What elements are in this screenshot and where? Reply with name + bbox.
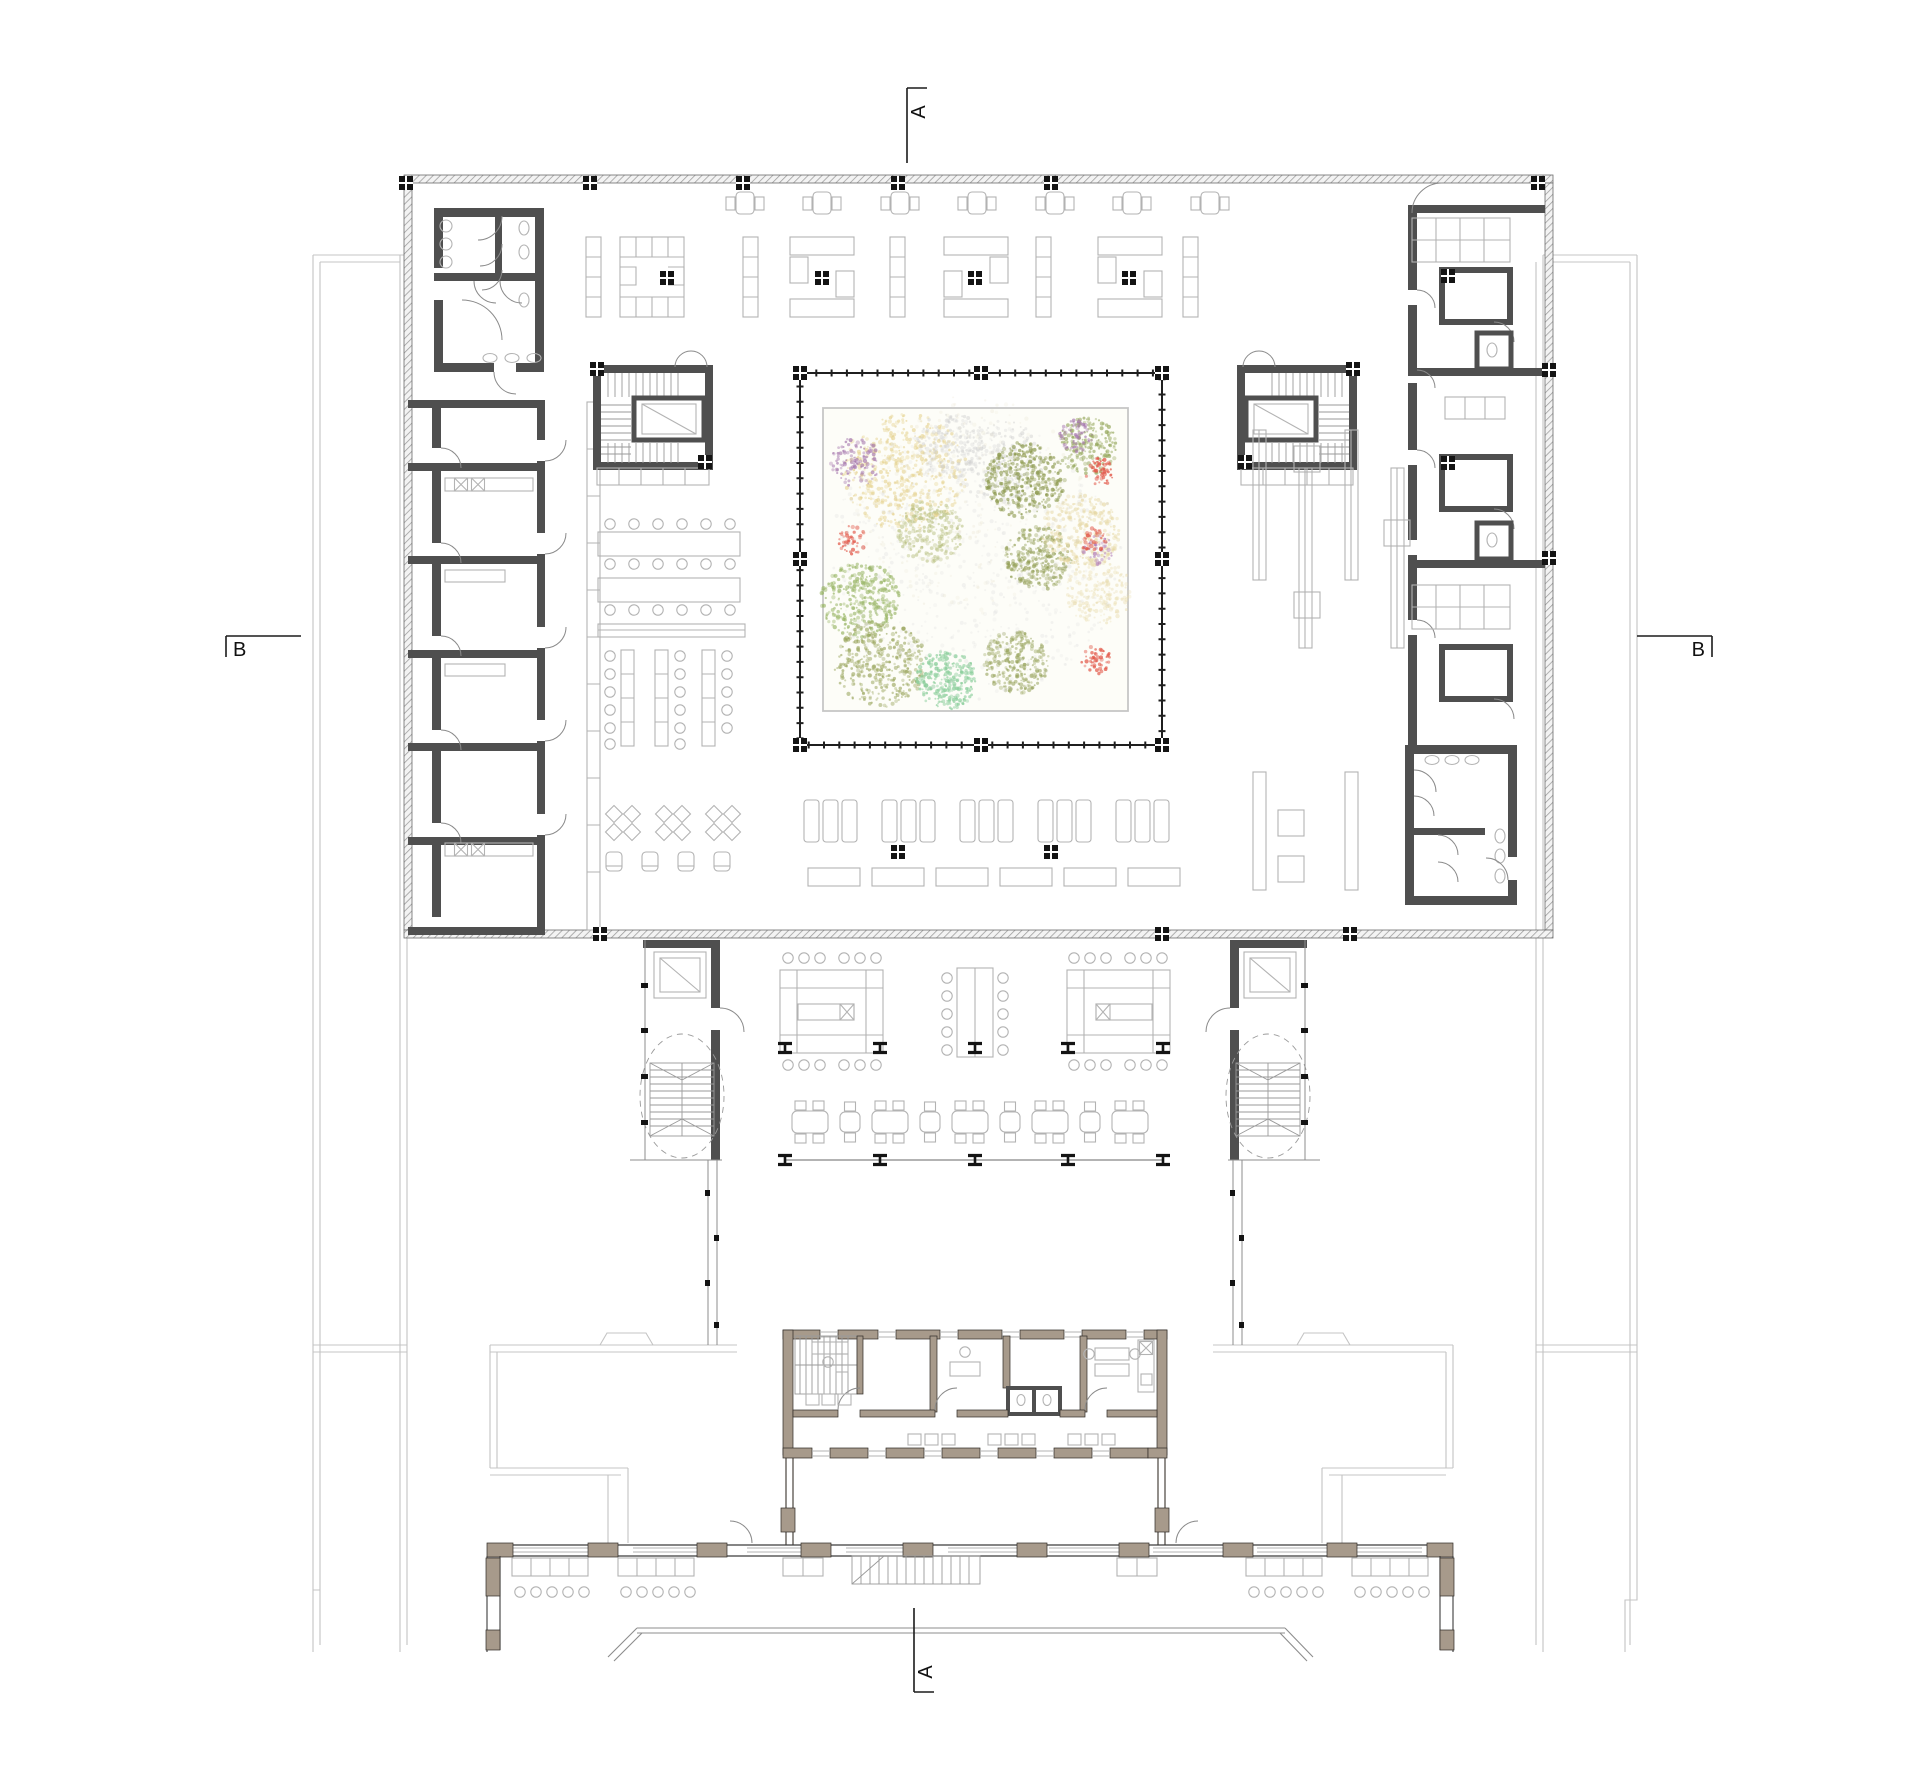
stair-core-northeast: [1238, 351, 1360, 485]
floor-plan-page: A A B B: [0, 0, 1920, 1792]
east-shelving: [1253, 430, 1410, 890]
wc-block-southeast: [1405, 745, 1517, 905]
section-label-a-bottom: A: [915, 1665, 937, 1679]
annex-building: [781, 1330, 1169, 1545]
section-label-a-top: A: [908, 105, 930, 119]
west-wing-rooms: [408, 400, 600, 935]
annex-corridor-chairs: [908, 1434, 1115, 1445]
wc-block-northwest: [434, 208, 544, 394]
lounge-rows: [804, 800, 1180, 886]
terrace-front: [486, 1521, 1454, 1661]
banquette-right: [1067, 953, 1170, 1070]
stair-core-southeast: [1206, 940, 1320, 1345]
floor-plan-drawing: A A B B: [0, 0, 1920, 1792]
banquette-left: [780, 953, 883, 1070]
annex-stair: [795, 1336, 863, 1394]
section-label-b-left: B: [233, 639, 246, 661]
stair-core-southwest: [630, 940, 744, 1345]
terrace-edge: [608, 1628, 1313, 1661]
terrace-counters: [512, 1558, 1429, 1597]
x-table-groups: [606, 806, 741, 841]
stool-rows: [605, 650, 732, 749]
section-label-b-right: B: [1692, 639, 1705, 661]
stair-core-northwest: [590, 351, 712, 485]
entrance-stair: [852, 1556, 980, 1584]
east-wing-rooms: [1408, 183, 1545, 745]
armchair-row: [606, 852, 730, 871]
cafe-area: [778, 953, 1170, 1165]
courtyard: [793, 366, 1169, 752]
